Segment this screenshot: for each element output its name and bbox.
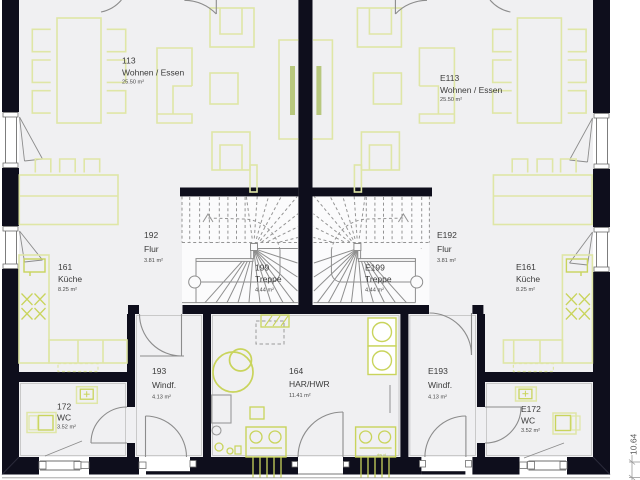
svg-text:Küche: Küche: [516, 274, 540, 284]
svg-text:4.44 m²: 4.44 m²: [365, 288, 384, 294]
svg-text:3.52 m²: 3.52 m²: [521, 428, 540, 434]
svg-text:25.50 m²: 25.50 m²: [440, 97, 462, 103]
svg-text:Küche: Küche: [58, 274, 82, 284]
svg-text:Treppe: Treppe: [255, 274, 282, 284]
svg-text:3.52 m²: 3.52 m²: [57, 425, 76, 431]
svg-text:10.64: 10.64: [629, 433, 639, 455]
svg-text:E193: E193: [428, 366, 448, 376]
svg-text:4.13 m²: 4.13 m²: [152, 395, 171, 401]
svg-text:HAR/HWR: HAR/HWR: [289, 379, 330, 389]
svg-text:Wohnen / Essen: Wohnen / Essen: [440, 85, 502, 95]
svg-text:25.50 m²: 25.50 m²: [122, 80, 144, 86]
svg-text:E113: E113: [440, 73, 459, 83]
svg-text:164: 164: [289, 366, 303, 376]
svg-text:Flur: Flur: [144, 244, 159, 254]
svg-text:dw cl: dw cl: [377, 452, 386, 457]
svg-text:172: 172: [57, 402, 71, 412]
svg-text:Windf.: Windf.: [152, 380, 176, 390]
svg-text:4.13 m²: 4.13 m²: [428, 395, 447, 401]
svg-text:Treppe: Treppe: [365, 274, 392, 284]
svg-text:WC: WC: [57, 413, 71, 423]
svg-text:3.81 m²: 3.81 m²: [144, 258, 163, 264]
svg-text:WC: WC: [521, 416, 535, 426]
svg-text:E199: E199: [365, 263, 385, 273]
svg-text:Flur: Flur: [437, 244, 452, 254]
svg-text:199: 199: [255, 263, 269, 273]
svg-text:193: 193: [152, 366, 166, 376]
svg-text:11.41 m²: 11.41 m²: [289, 393, 311, 399]
svg-text:161: 161: [58, 262, 72, 272]
svg-text:8.25 m²: 8.25 m²: [516, 287, 535, 293]
svg-text:3.81 m²: 3.81 m²: [437, 258, 456, 264]
svg-text:E161: E161: [516, 262, 536, 272]
svg-text:E172: E172: [521, 404, 541, 414]
svg-text:192: 192: [144, 230, 158, 240]
svg-text:Wohnen / Essen: Wohnen / Essen: [122, 68, 184, 78]
svg-text:8.25 m²: 8.25 m²: [58, 287, 77, 293]
svg-text:E192: E192: [437, 230, 457, 240]
svg-text:4.44 m²: 4.44 m²: [255, 288, 274, 294]
svg-text:Windf.: Windf.: [428, 380, 452, 390]
svg-text:113: 113: [122, 56, 136, 66]
